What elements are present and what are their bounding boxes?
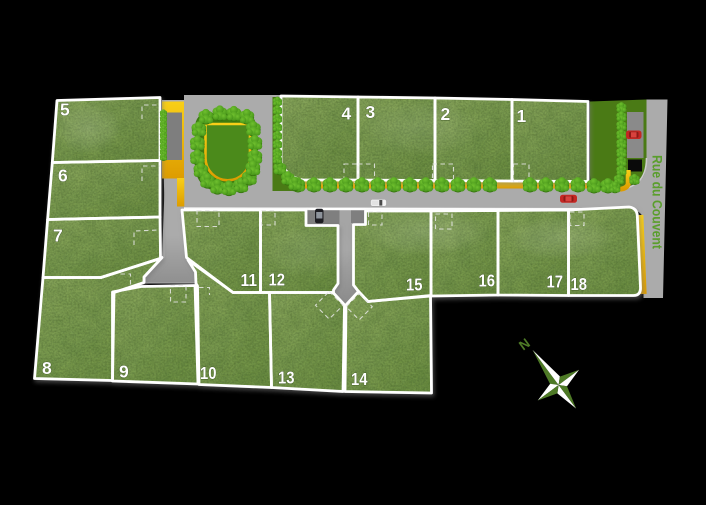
svg-text:12: 12	[269, 270, 286, 290]
svg-text:5: 5	[60, 100, 70, 120]
svg-text:7: 7	[53, 226, 63, 246]
svg-text:13: 13	[278, 368, 295, 388]
svg-text:18: 18	[571, 274, 588, 294]
svg-text:9: 9	[119, 362, 129, 382]
svg-text:17: 17	[547, 272, 564, 292]
svg-text:14: 14	[351, 369, 368, 389]
svg-text:3: 3	[366, 102, 376, 122]
svg-text:11: 11	[241, 270, 258, 290]
svg-text:1: 1	[517, 106, 527, 126]
svg-text:4: 4	[342, 104, 352, 124]
svg-text:10: 10	[200, 363, 217, 383]
svg-text:6: 6	[58, 166, 68, 186]
svg-text:Rue du Couvent: Rue du Couvent	[649, 155, 665, 249]
svg-text:16: 16	[479, 271, 496, 291]
svg-text:8: 8	[42, 358, 52, 378]
svg-text:15: 15	[406, 275, 423, 295]
svg-text:2: 2	[441, 104, 451, 124]
